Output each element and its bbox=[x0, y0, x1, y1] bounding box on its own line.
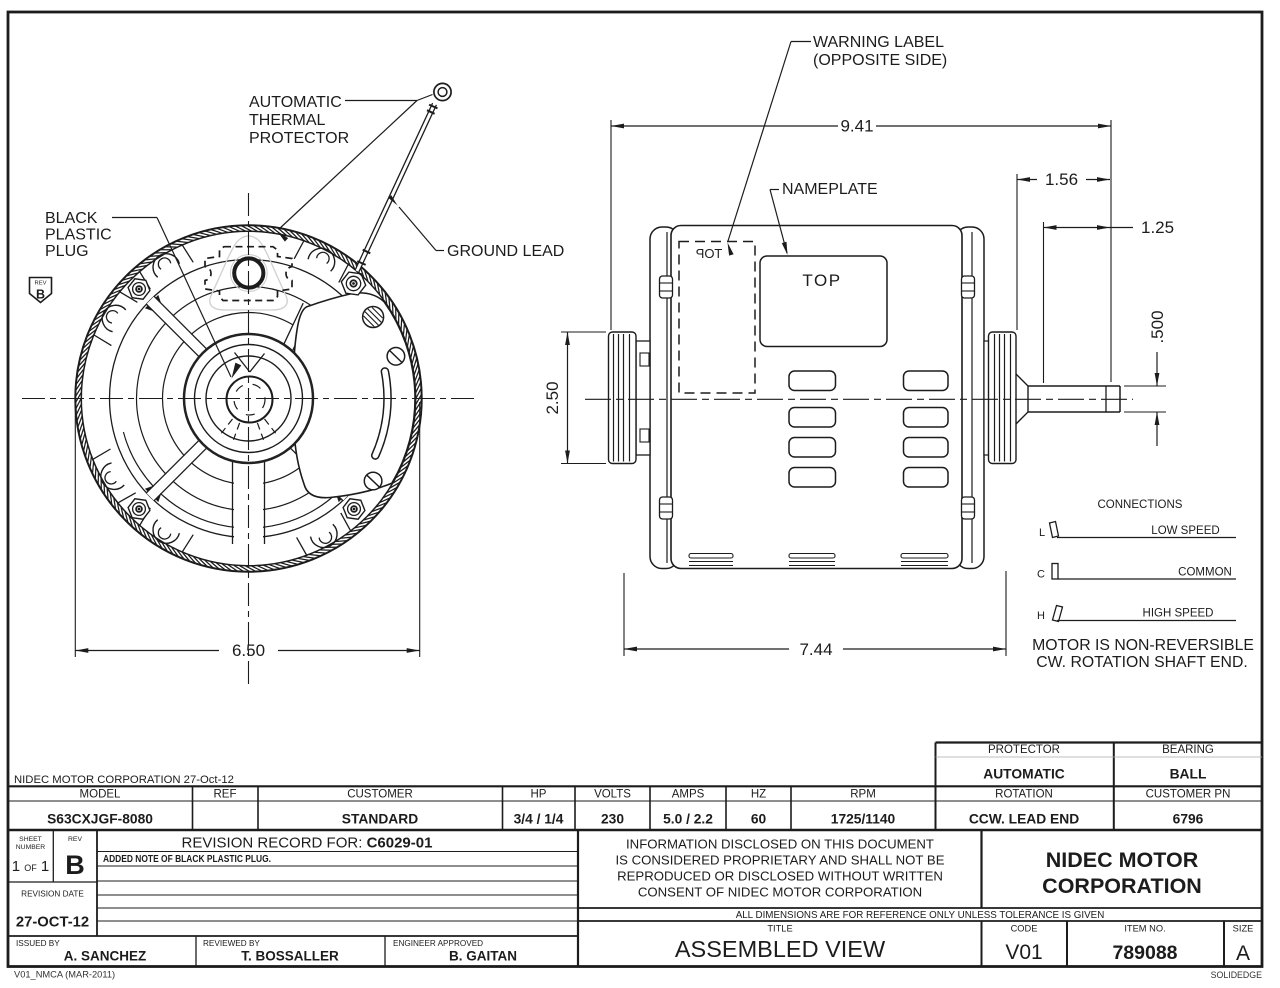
svg-text:HIGH SPEED: HIGH SPEED bbox=[1143, 608, 1214, 620]
svg-text:ADDED NOTE OF BLACK PLASTIC PL: ADDED NOTE OF BLACK PLASTIC PLUG. bbox=[103, 853, 271, 865]
svg-text:A: A bbox=[1236, 942, 1250, 965]
svg-text:27-OCT-12: 27-OCT-12 bbox=[16, 915, 89, 931]
svg-text:PROTECTOR: PROTECTOR bbox=[988, 744, 1060, 756]
svg-text:BALL: BALL bbox=[1170, 767, 1207, 782]
svg-text:B: B bbox=[65, 850, 85, 880]
svg-text:T. BOSSALLER: T. BOSSALLER bbox=[241, 949, 339, 964]
svg-text:6.50: 6.50 bbox=[232, 641, 265, 660]
svg-text:CORPORATION: CORPORATION bbox=[1042, 874, 1202, 898]
svg-text:1.25: 1.25 bbox=[1141, 218, 1174, 237]
svg-text:AUTOMATIC: AUTOMATIC bbox=[983, 767, 1065, 782]
svg-text:SIZE: SIZE bbox=[1233, 924, 1254, 934]
svg-text:1725/1140: 1725/1140 bbox=[831, 812, 896, 827]
svg-text:IS CONSIDERED PROPRIETARY AND: IS CONSIDERED PROPRIETARY AND SHALL NOT … bbox=[615, 853, 944, 868]
svg-text:HZ: HZ bbox=[751, 789, 766, 801]
svg-text:REPRODUCED OR DISCLOSED WITHOU: REPRODUCED OR DISCLOSED WITHOUT WRITTEN bbox=[617, 869, 943, 884]
svg-text:3/4 / 1/4: 3/4 / 1/4 bbox=[514, 812, 564, 827]
svg-text:TITLE: TITLE bbox=[767, 924, 792, 934]
svg-text:CONNECTIONS: CONNECTIONS bbox=[1098, 499, 1183, 511]
svg-text:VOLTS: VOLTS bbox=[594, 789, 631, 801]
svg-text:V01: V01 bbox=[1005, 941, 1042, 964]
svg-text:HP: HP bbox=[531, 789, 547, 801]
svg-text:C: C bbox=[1037, 569, 1045, 581]
svg-text:789088: 789088 bbox=[1112, 942, 1177, 964]
svg-text:CUSTOMER PN: CUSTOMER PN bbox=[1146, 789, 1231, 801]
svg-text:A. SANCHEZ: A. SANCHEZ bbox=[64, 949, 147, 964]
svg-text:NAMEPLATE: NAMEPLATE bbox=[782, 181, 878, 198]
svg-text:ASSEMBLED VIEW: ASSEMBLED VIEW bbox=[675, 936, 886, 962]
svg-text:NIDEC MOTOR: NIDEC MOTOR bbox=[1046, 848, 1199, 872]
svg-text:WARNING LABEL: WARNING LABEL bbox=[813, 34, 944, 51]
svg-text:TOP: TOP bbox=[696, 246, 723, 261]
svg-text:(OPPOSITE SIDE): (OPPOSITE SIDE) bbox=[813, 52, 947, 69]
svg-text:LOW SPEED: LOW SPEED bbox=[1151, 525, 1219, 537]
svg-text:SOLIDEDGE: SOLIDEDGE bbox=[1211, 970, 1262, 980]
svg-text:S63CXJGF-8080: S63CXJGF-8080 bbox=[47, 812, 153, 827]
svg-text:B. GAITAN: B. GAITAN bbox=[449, 949, 517, 964]
svg-text:REV: REV bbox=[35, 281, 47, 287]
svg-text:CW. ROTATION SHAFT END.: CW. ROTATION SHAFT END. bbox=[1036, 654, 1248, 671]
svg-text:PLUG: PLUG bbox=[45, 243, 89, 260]
svg-text:PROTECTOR: PROTECTOR bbox=[249, 130, 349, 147]
svg-text:V01_NMCA (MAR-2011): V01_NMCA (MAR-2011) bbox=[14, 970, 115, 980]
svg-text:60: 60 bbox=[751, 812, 767, 827]
svg-text:RPM: RPM bbox=[850, 789, 876, 801]
svg-text:INFORMATION DISCLOSED ON THIS: INFORMATION DISCLOSED ON THIS DOCUMENT bbox=[626, 837, 934, 852]
svg-text:H: H bbox=[1037, 610, 1045, 622]
svg-text:REVIEWED BY: REVIEWED BY bbox=[203, 939, 260, 948]
svg-text:MOTOR IS NON-REVERSIBLE: MOTOR IS NON-REVERSIBLE bbox=[1032, 637, 1254, 654]
svg-text:.500: .500 bbox=[1148, 310, 1167, 343]
svg-text:STANDARD: STANDARD bbox=[342, 812, 418, 827]
svg-text:ENGINEER APPROVED: ENGINEER APPROVED bbox=[393, 939, 483, 948]
svg-text:230: 230 bbox=[601, 812, 624, 827]
svg-text:REF: REF bbox=[214, 789, 237, 801]
svg-text:PLASTIC: PLASTIC bbox=[45, 227, 112, 244]
svg-text:ISSUED BY: ISSUED BY bbox=[16, 939, 60, 948]
svg-text:2.50: 2.50 bbox=[543, 381, 562, 414]
svg-text:CUSTOMER: CUSTOMER bbox=[347, 789, 413, 801]
svg-text:SHEET: SHEET bbox=[19, 836, 42, 843]
svg-text:1.56: 1.56 bbox=[1045, 170, 1078, 189]
svg-text:COMMON: COMMON bbox=[1178, 567, 1232, 579]
svg-text:NIDEC MOTOR CORPORATION 27-Oct: NIDEC MOTOR CORPORATION 27-Oct-12 bbox=[14, 774, 234, 786]
svg-text:7.44: 7.44 bbox=[799, 640, 832, 659]
svg-text:AUTOMATIC: AUTOMATIC bbox=[249, 94, 342, 111]
svg-text:L: L bbox=[1039, 527, 1045, 539]
svg-text:REVISION DATE: REVISION DATE bbox=[21, 890, 84, 899]
svg-text:ALL DIMENSIONS ARE FOR REFEREN: ALL DIMENSIONS ARE FOR REFERENCE ONLY UN… bbox=[736, 910, 1105, 921]
svg-text:MODEL: MODEL bbox=[80, 789, 122, 801]
svg-text:ROTATION: ROTATION bbox=[995, 789, 1053, 801]
svg-text:ITEM NO.: ITEM NO. bbox=[1124, 924, 1165, 934]
svg-text:B: B bbox=[36, 288, 45, 302]
svg-text:NUMBER: NUMBER bbox=[16, 844, 46, 851]
svg-text:REV: REV bbox=[68, 836, 82, 843]
svg-text:GROUND LEAD: GROUND LEAD bbox=[447, 243, 564, 260]
svg-text:CCW. LEAD END: CCW. LEAD END bbox=[969, 812, 1079, 827]
svg-text:TOP: TOP bbox=[802, 271, 841, 290]
svg-text:CODE: CODE bbox=[1011, 924, 1038, 934]
svg-text:REVISION RECORD FOR: C6029-01: REVISION RECORD FOR: C6029-01 bbox=[182, 835, 433, 852]
svg-text:BEARING: BEARING bbox=[1162, 744, 1214, 756]
svg-text:5.0 / 2.2: 5.0 / 2.2 bbox=[663, 812, 713, 827]
svg-text:6796: 6796 bbox=[1173, 812, 1204, 827]
svg-text:THERMAL: THERMAL bbox=[249, 112, 326, 129]
svg-text:CONSENT OF NIDEC MOTOR CORPORA: CONSENT OF NIDEC MOTOR CORPORATION bbox=[638, 885, 922, 900]
svg-text:9.41: 9.41 bbox=[840, 117, 873, 136]
svg-text:AMPS: AMPS bbox=[672, 789, 705, 801]
svg-text:BLACK: BLACK bbox=[45, 210, 98, 227]
